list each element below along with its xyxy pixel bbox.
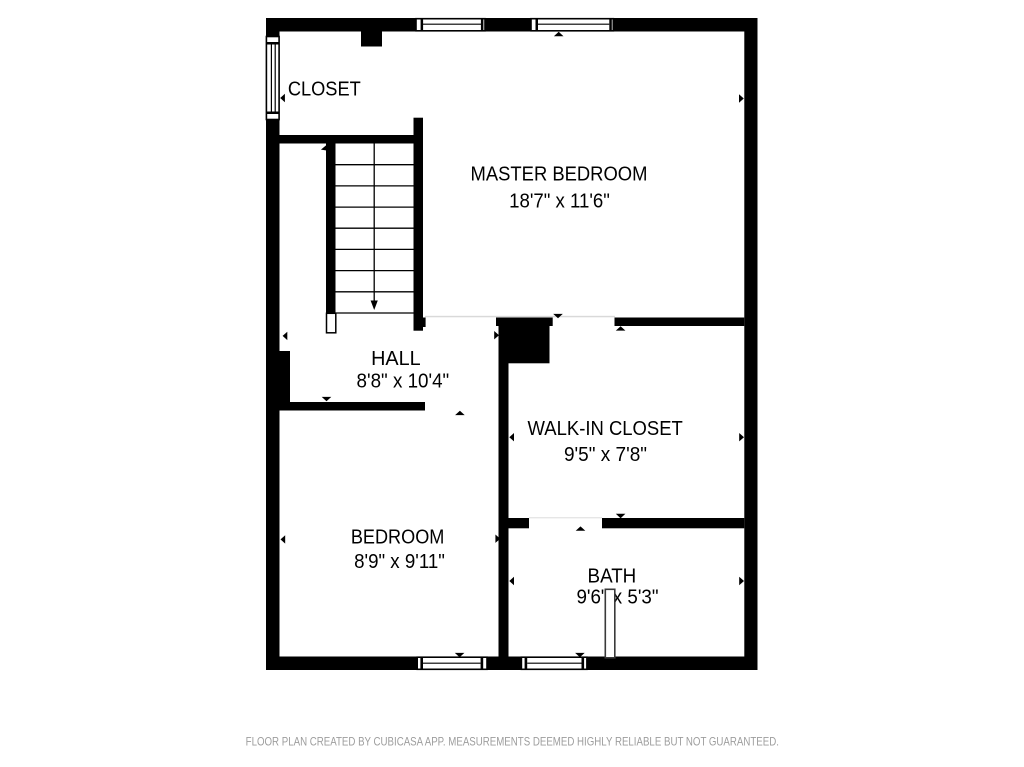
svg-text:9'6" x 5'3": 9'6" x 5'3" (576, 587, 658, 609)
svg-text:8'9" x 9'11": 8'9" x 9'11" (354, 551, 445, 573)
svg-text:HALL: HALL (371, 348, 421, 370)
svg-text:9'5" x 7'8": 9'5" x 7'8" (564, 444, 647, 466)
svg-text:FLOOR PLAN CREATED BY CUBICASA: FLOOR PLAN CREATED BY CUBICASA APP. MEAS… (246, 734, 779, 748)
svg-text:BEDROOM: BEDROOM (351, 527, 445, 549)
svg-text:CLOSET: CLOSET (288, 79, 361, 101)
svg-text:WALK-IN CLOSET: WALK-IN CLOSET (528, 418, 683, 440)
svg-text:MASTER BEDROOM: MASTER BEDROOM (471, 164, 648, 186)
svg-text:BATH: BATH (588, 566, 637, 588)
svg-text:18'7" x 11'6": 18'7" x 11'6" (509, 190, 610, 212)
svg-text:8'8" x 10'4": 8'8" x 10'4" (357, 371, 450, 393)
